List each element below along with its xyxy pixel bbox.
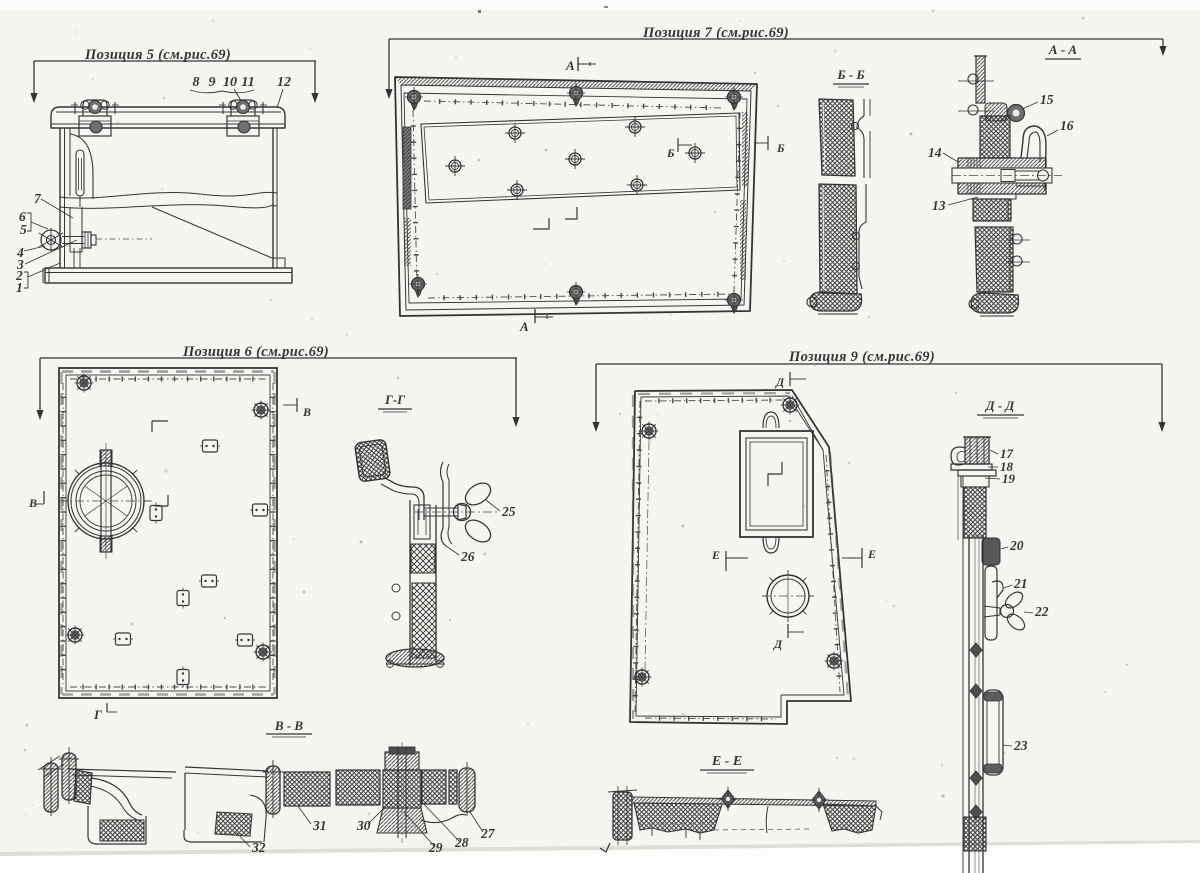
svg-text:26: 26 — [460, 549, 475, 564]
svg-text:15: 15 — [1040, 92, 1054, 107]
svg-text:23: 23 — [1013, 738, 1028, 753]
svg-text:В - В: В - В — [274, 718, 304, 733]
svg-text:Б - Б: Б - Б — [836, 67, 864, 82]
svg-text:21: 21 — [1013, 576, 1028, 591]
svg-text:Г: Г — [93, 707, 102, 722]
svg-text:31: 31 — [312, 818, 327, 833]
svg-text:14: 14 — [928, 145, 942, 160]
svg-text:Д: Д — [775, 375, 785, 389]
svg-text:13: 13 — [932, 198, 946, 213]
svg-text:Г-Г: Г-Г — [384, 392, 405, 407]
svg-text:Е - Е: Е - Е — [711, 754, 742, 769]
svg-text:А: А — [565, 58, 575, 73]
svg-text:Д - Д: Д - Д — [985, 398, 1016, 413]
svg-text:25: 25 — [501, 504, 516, 519]
svg-text:22: 22 — [1034, 604, 1049, 619]
svg-text:Е: Е — [711, 548, 720, 562]
svg-text:30: 30 — [356, 818, 371, 833]
svg-text:16: 16 — [1060, 118, 1074, 133]
svg-text:5: 5 — [20, 222, 27, 237]
svg-text:Позиция 9 (см.рис.69): Позиция 9 (см.рис.69) — [788, 349, 935, 365]
svg-text:Е: Е — [867, 547, 876, 561]
svg-text:В: В — [302, 405, 311, 419]
svg-text:20: 20 — [1009, 538, 1024, 553]
svg-text:Б: Б — [666, 146, 675, 160]
svg-text:А: А — [519, 319, 529, 334]
svg-text:12: 12 — [277, 75, 291, 90]
svg-text:Б: Б — [776, 141, 785, 155]
svg-text:10: 10 — [223, 75, 237, 90]
svg-text:В: В — [28, 496, 37, 510]
svg-text:11: 11 — [241, 75, 254, 90]
svg-text:28: 28 — [454, 835, 469, 850]
svg-text:9: 9 — [209, 75, 216, 90]
svg-text:А - А: А - А — [1048, 42, 1078, 57]
svg-text:8: 8 — [193, 75, 200, 90]
svg-text:1: 1 — [16, 280, 23, 295]
svg-text:32: 32 — [251, 840, 266, 855]
svg-text:27: 27 — [480, 826, 496, 841]
svg-text:19: 19 — [1002, 471, 1016, 486]
svg-text:Д: Д — [773, 637, 783, 651]
